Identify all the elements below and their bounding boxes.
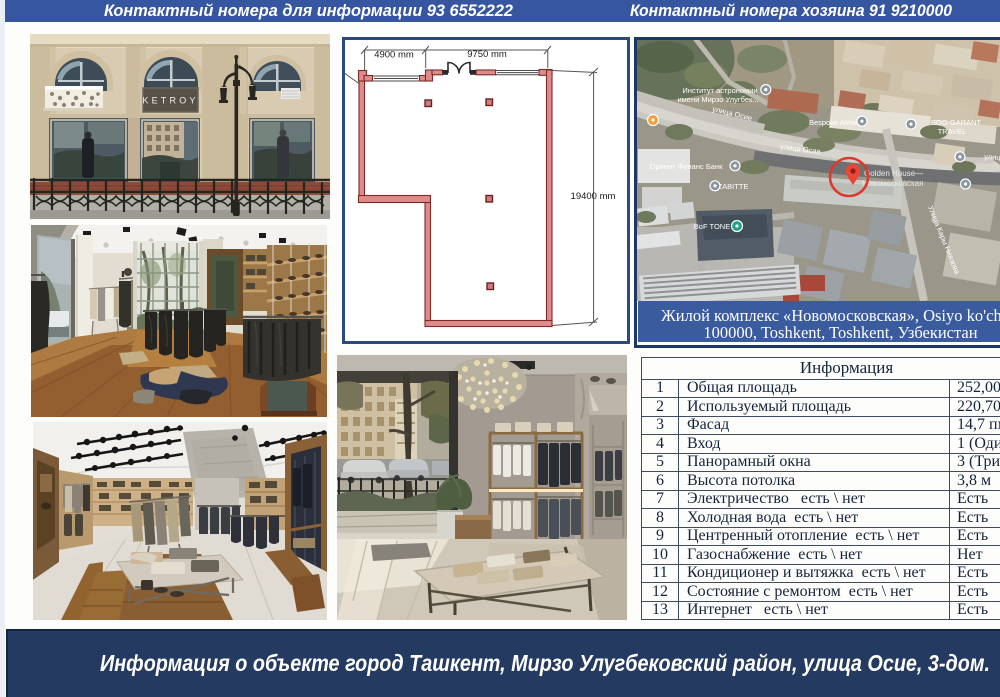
svg-text:Bespoke Atelier: Bespoke Atelier	[809, 118, 862, 127]
svg-text:Ориент Финанс Банк: Ориент Финанс Банк	[650, 162, 723, 171]
svg-text:Институт астрономии: Институт астрономии	[682, 86, 757, 95]
svg-text:KETROY: KETROY	[142, 96, 198, 106]
svg-text:19400 mm: 19400 mm	[571, 191, 616, 202]
svg-text:BOO GARANT: BOO GARANT	[931, 118, 981, 127]
svg-text:4900 mm: 4900 mm	[374, 50, 414, 61]
svg-text:TRAVEL: TRAVEL	[938, 127, 967, 136]
svg-text:BoF TONE: BoF TONE	[694, 222, 730, 231]
svg-text:Golden House—: Golden House—	[864, 169, 923, 178]
svg-text:Новомосковская: Новомосковская	[862, 179, 923, 188]
svg-text:улиц: улиц	[984, 152, 1000, 162]
svg-text:9750 mm: 9750 mm	[467, 49, 507, 60]
svg-text:ZABITTE: ZABITTE	[718, 182, 749, 191]
svg-text:имени Мирзо Улугбек...: имени Мирзо Улугбек...	[677, 95, 758, 104]
